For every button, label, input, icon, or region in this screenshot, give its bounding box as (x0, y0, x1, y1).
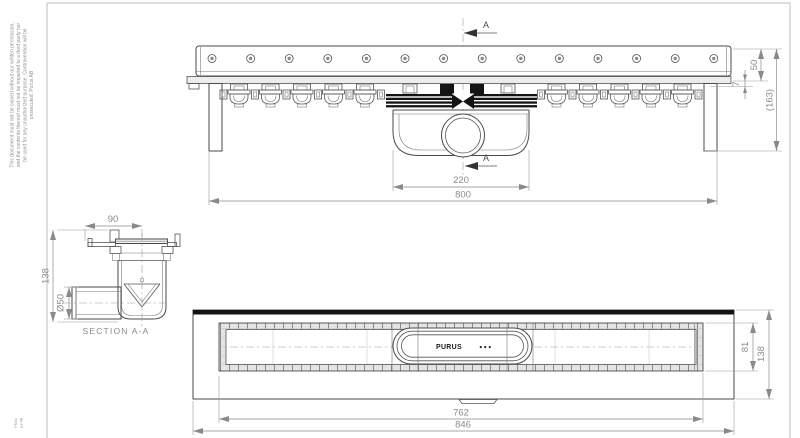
outlet-circle (442, 114, 485, 157)
disclaimer-text: This document must not be copied without… (10, 22, 36, 167)
rail-lip-hook (189, 84, 199, 90)
section-label-top: A (483, 20, 489, 30)
disclaimer-line-3: be used for any unauthorized purpose. Co… (23, 28, 29, 162)
section-view: 90 138 Ø50 SECTION A-A (41, 214, 181, 336)
brand-logo-text: PURUS (436, 344, 462, 351)
center-seal (386, 84, 537, 109)
section-marker-top: A (464, 20, 497, 37)
section-arrow-icon (465, 162, 478, 170)
clamp-post (601, 90, 608, 99)
dim-50: 50 (749, 60, 760, 71)
dimension-inner-length: 762 (219, 373, 703, 423)
clamp-cup (323, 84, 345, 107)
clamp-post (664, 90, 671, 99)
dim-90: 90 (108, 214, 119, 225)
logo-dots: ●●● (479, 345, 493, 351)
top-view: A A 220 800 50 (187, 18, 782, 205)
clamp-post (315, 90, 322, 99)
frame-top-edge (193, 310, 734, 315)
dim-138-bottom: 138 (756, 346, 767, 362)
dim-762: 762 (453, 408, 469, 419)
clamp-post (538, 90, 545, 99)
clamp-cup (577, 84, 599, 107)
clip-right (162, 247, 173, 254)
clamp-cup (354, 84, 376, 107)
logo-plate-outer (393, 328, 532, 364)
clamp-cup (640, 84, 662, 107)
dim-800: 800 (455, 190, 471, 201)
flange-upturn-right (175, 234, 180, 247)
dim-163: (163) (765, 89, 776, 111)
micro-stamp: PM46 pur AB (14, 417, 24, 428)
disclaimer-line-1: This document must not be copied without… (10, 22, 16, 167)
dimension-section-height: 138 (41, 230, 119, 322)
clamp-cup (260, 84, 282, 107)
dim-138-section: 138 (41, 268, 52, 284)
clamp-post (569, 90, 576, 99)
dim-846: 846 (455, 420, 471, 431)
clamp-cup (546, 84, 568, 107)
clamp-cup (609, 84, 631, 107)
section-label-bottom: A (483, 153, 489, 163)
dim-81: 81 (740, 342, 751, 353)
disclaimer-line-4: prosecuted. Purus AB (29, 70, 35, 119)
drawing-sheet: This document must not be copied without… (0, 0, 800, 438)
section-arrow-icon (464, 29, 477, 37)
clamp-cup (291, 84, 313, 107)
clamp-cup (228, 84, 250, 107)
outlet-notch (459, 400, 497, 404)
disclaimer-line-2: and the contents thereof must not be imp… (16, 23, 22, 168)
drawing-canvas: This document must not be copied without… (0, 0, 800, 438)
micro-stamp-line-2: pur AB (20, 417, 24, 428)
trap-housing (393, 110, 529, 157)
micro-stamp-line-1: PM46 (14, 418, 18, 427)
bottom-view: PURUS ●●● 762 846 81 138 (193, 310, 774, 435)
clamp-post (632, 90, 639, 99)
clamp-post (346, 90, 353, 99)
clip-left (110, 247, 121, 254)
section-caption: SECTION A-A (82, 326, 149, 336)
clamp-hanger (403, 84, 417, 93)
dimension-inner-width: 81 (705, 323, 758, 371)
clamp-post (695, 90, 702, 99)
dimension-rail-height: 50 (733, 49, 782, 81)
clamp-post (252, 90, 259, 99)
dimension-section-width: 90 (85, 214, 142, 241)
rail-lip (187, 77, 731, 84)
dim-7: 7 (731, 81, 742, 86)
clamp-cup (672, 84, 694, 107)
clamp-post (283, 90, 290, 99)
dimension-outer-width: 138 (736, 310, 774, 399)
clamp-hanger (501, 84, 515, 93)
dim-d50: Ø50 (56, 294, 67, 312)
channel-end-cap-right (704, 84, 717, 152)
clamp-post (378, 90, 385, 99)
dim-220: 220 (453, 175, 469, 186)
